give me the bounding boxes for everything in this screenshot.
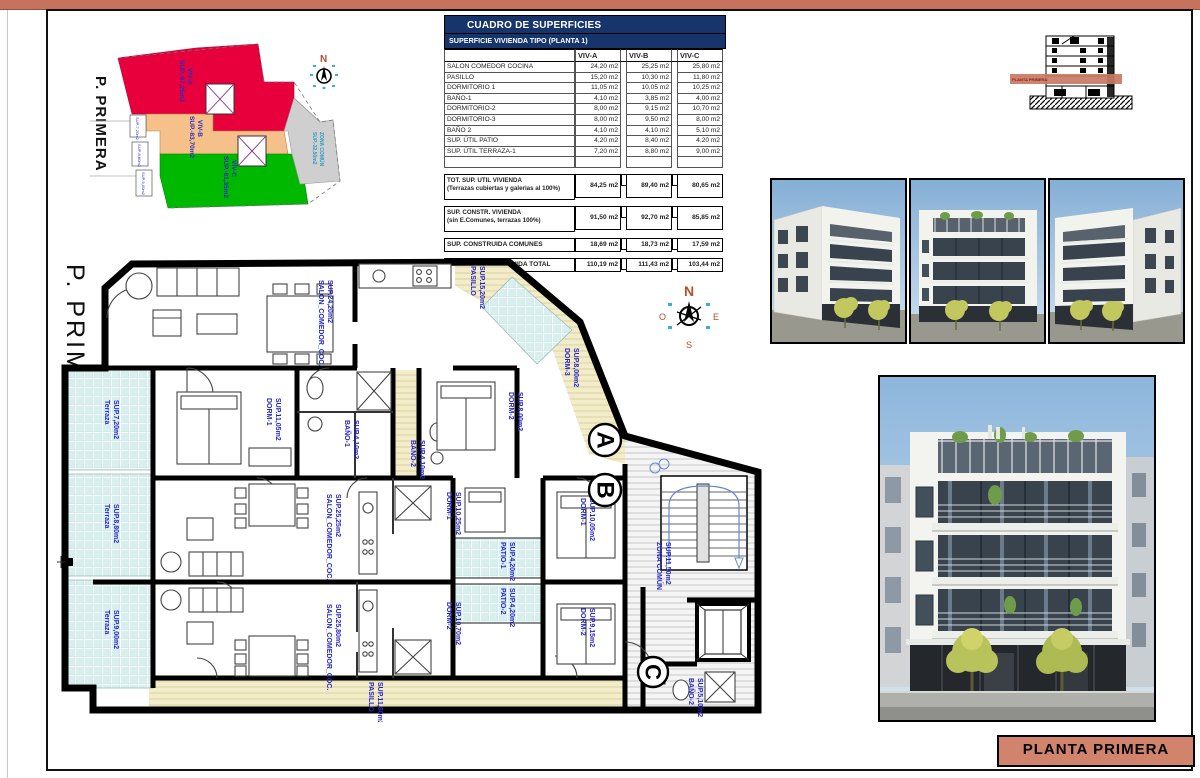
- table-row: SUP. ÚTIL TERRAZA-17,20 m28,80 m29,00 m2: [444, 147, 726, 158]
- table-summary-row: SUP. CONSTRUIDA COMUNES 18,69 m2 18,73 m…: [444, 238, 726, 252]
- svg-text:N: N: [320, 54, 327, 65]
- svg-text:SALON_COMEDOR_COC.: SALON_COMEDOR_COC.: [325, 494, 332, 580]
- svg-text:ZONA COMÚN: ZONA COMÚN: [318, 132, 325, 167]
- svg-text:Terraza: Terraza: [103, 400, 110, 424]
- svg-text:Terraza: Terraza: [103, 610, 110, 634]
- svg-text:DORM-1: DORM-1: [265, 398, 272, 426]
- floor-plan: P. PRIMERA: [57, 252, 767, 722]
- svg-text:SUP.11,05m2: SUP.11,05m2: [274, 398, 281, 441]
- svg-text:DORM-2: DORM-2: [445, 602, 452, 630]
- section-band-label: PLANTA PRIMERA: [1012, 77, 1047, 82]
- pier-windows: [916, 487, 933, 625]
- svg-text:SUP.10,70m2: SUP.10,70m2: [454, 602, 461, 645]
- svg-text:SUP.-83,70m2: SUP.-83,70m2: [188, 116, 195, 159]
- svg-text:SUP.4,20m2: SUP.4,20m2: [508, 588, 515, 627]
- table-summary-row: TOT. SUP. UTIL VIVIENDA(Terrazas cubiert…: [444, 174, 726, 200]
- svg-text:SUP.24,20m2: SUP.24,20m2: [326, 280, 333, 323]
- svg-text:SUP.-87,25m2: SUP.-87,25m2: [178, 60, 185, 103]
- svg-text:BAÑO-2: BAÑO-2: [687, 678, 696, 705]
- block-letter-a: A: [589, 424, 621, 456]
- svg-text:SALON_COMEDOR_COC.: SALON_COMEDOR_COC.: [317, 280, 324, 366]
- svg-text:DORM-3: DORM-3: [563, 348, 570, 376]
- surface-table-subtitle: SUPERFICIE VIVIENDA TIPO (PLANTA 1): [444, 34, 726, 49]
- table-row: SUP. ÚTIL PATIO4,20 m28,40 m24,20 m2: [444, 136, 726, 147]
- svg-text:DORM-2: DORM-2: [579, 608, 586, 636]
- svg-text:PATIO-1: PATIO-1: [499, 542, 506, 569]
- balcony-floors: [932, 481, 1118, 639]
- svg-text:VIV-C: VIV-C: [230, 160, 237, 177]
- svg-text:SUP.-81,35m2: SUP.-81,35m2: [222, 156, 229, 199]
- svg-text:SUP.15,20m2: SUP.15,20m2: [478, 266, 485, 309]
- svg-text:PATIO-2: PATIO-2: [499, 588, 506, 615]
- svg-text:C: C: [641, 664, 666, 680]
- svg-text:SUP.10,05m2: SUP.10,05m2: [588, 498, 595, 541]
- surface-table-header: VIV-A VIV-B VIV-C: [444, 49, 726, 62]
- col-viv-b: VIV-B: [626, 49, 672, 62]
- svg-text:SUP.4,20m2: SUP.4,20m2: [508, 542, 515, 581]
- title-block: PLANTA PRIMERA: [997, 735, 1195, 767]
- table-row: BAÑO-14,10 m23,85 m24,00 m2: [444, 94, 726, 105]
- table-row: SALON COMEDOR COCINA24,20 m225,25 m225,8…: [444, 62, 726, 73]
- svg-text:A: A: [592, 431, 619, 448]
- svg-text:SUP.9,15m2: SUP.9,15m2: [588, 608, 595, 647]
- svg-text:E: E: [713, 312, 719, 322]
- key-plan: P. PRIMERA SUP-7,20m2 SUP-8,80m2 SUP-9,0…: [88, 36, 358, 231]
- ground-floor: [906, 639, 1130, 692]
- svg-text:DORM-1: DORM-1: [579, 498, 586, 526]
- svg-text:SUP.10,25m2: SUP.10,25m2: [454, 492, 461, 535]
- plan-compass-icon: N O E S: [659, 283, 719, 350]
- svg-text:B: B: [592, 481, 619, 498]
- svg-text:BAÑO-1: BAÑO-1: [343, 420, 352, 447]
- surface-table: CUADRO DE SUPERFICIES SUPERFICIE VIVIEND…: [444, 15, 726, 272]
- drawing-sheet: P. PRIMERA SUP-7,20m2 SUP-8,80m2 SUP-9,0…: [0, 0, 1200, 778]
- key-plan-floor-label: P. PRIMERA: [92, 76, 109, 172]
- svg-text:SUP-9,00m2: SUP-9,00m2: [141, 172, 146, 196]
- svg-text:SALON_COMEDOR_COC.: SALON_COMEDOR_COC.: [325, 604, 332, 690]
- svg-text:SUP.8,00m2: SUP.8,00m2: [572, 348, 579, 387]
- svg-text:O: O: [659, 312, 666, 322]
- svg-text:P. PRIMERA: P. PRIMERA: [92, 76, 109, 172]
- table-row: DORMITORIO-28,00 m29,15 m210,70 m2: [444, 104, 726, 115]
- sheet-frame: P. PRIMERA SUP-7,20m2 SUP-8,80m2 SUP-9,0…: [46, 9, 1193, 771]
- table-row-empty: [444, 157, 726, 168]
- svg-text:VIV-A: VIV-A: [186, 68, 193, 85]
- render-thumb-center: [909, 178, 1046, 344]
- svg-text:SUP.11,80m2: SUP.11,80m2: [376, 682, 383, 722]
- svg-text:SUP.25,25m2: SUP.25,25m2: [334, 494, 341, 537]
- table-row: BAÑO 24,10 m24,10 m25,10 m2: [444, 126, 726, 137]
- table-row: PASILLO15,20 m210,30 m211,80 m2: [444, 73, 726, 84]
- north-compass-icon: N: [310, 54, 338, 89]
- svg-text:DORM-1: DORM-1: [445, 492, 452, 520]
- svg-text:N: N: [684, 283, 694, 299]
- svg-text:SUP.8,00m2: SUP.8,00m2: [516, 392, 523, 431]
- svg-text:SUP.4,10m2: SUP.4,10m2: [418, 440, 425, 479]
- svg-text:SUP.25,80m2: SUP.25,80m2: [334, 604, 341, 647]
- svg-text:BAÑO-2: BAÑO-2: [409, 440, 418, 467]
- svg-text:PASILLO: PASILLO: [469, 266, 476, 296]
- block-letter-b: B: [589, 474, 621, 506]
- page-edge-line: [7, 0, 8, 778]
- render-main-facade: [878, 375, 1156, 722]
- col-viv-c: VIV-C: [677, 49, 723, 62]
- table-summary-row: SUP. CONSTR. VIVIENDA(sin E.Comunes, ter…: [444, 206, 726, 232]
- svg-text:SUP.11,50m2: SUP.11,50m2: [664, 542, 671, 585]
- svg-text:SUP.4,10m2: SUP.4,10m2: [352, 420, 359, 459]
- elevator-shaft: [697, 604, 749, 660]
- svg-text:SUP-8,80m2: SUP-8,80m2: [137, 144, 142, 168]
- table-row: DORMITORIO-38,00 m29,50 m28,00 m2: [444, 115, 726, 126]
- render-thumb-right: [1048, 178, 1185, 344]
- svg-text:S: S: [686, 340, 692, 350]
- svg-text:SUP.5,10m2: SUP.5,10m2: [696, 678, 703, 717]
- svg-text:DORM-2: DORM-2: [507, 392, 514, 420]
- svg-text:SUP.8,80m2: SUP.8,80m2: [112, 504, 119, 543]
- svg-text:SUP.-32,50m2: SUP.-32,50m2: [311, 132, 317, 165]
- table-row: DORMITORIO 111,05 m210,05 m210,25 m2: [444, 83, 726, 94]
- svg-text:Terraza: Terraza: [103, 504, 110, 528]
- block-letter-c: C: [638, 657, 668, 687]
- col-viv-a: VIV-A: [575, 49, 621, 62]
- surface-table-title: CUADRO DE SUPERFICIES: [444, 15, 726, 34]
- render-thumb-left: [770, 178, 907, 344]
- building-section-thumb: PLANTA PRIMERA: [1010, 30, 1150, 122]
- svg-text:SUP.9,00m2: SUP.9,00m2: [112, 610, 119, 649]
- svg-text:PASILLO: PASILLO: [367, 682, 374, 712]
- sheet-title: PLANTA PRIMERA: [1023, 741, 1170, 758]
- svg-text:SUP.7,20m2: SUP.7,20m2: [112, 400, 119, 439]
- svg-text:ZONA COMÚN: ZONA COMÚN: [655, 542, 664, 590]
- svg-text:SUP-7,20m2: SUP-7,20m2: [135, 117, 140, 141]
- svg-text:VIV-B: VIV-B: [196, 120, 203, 137]
